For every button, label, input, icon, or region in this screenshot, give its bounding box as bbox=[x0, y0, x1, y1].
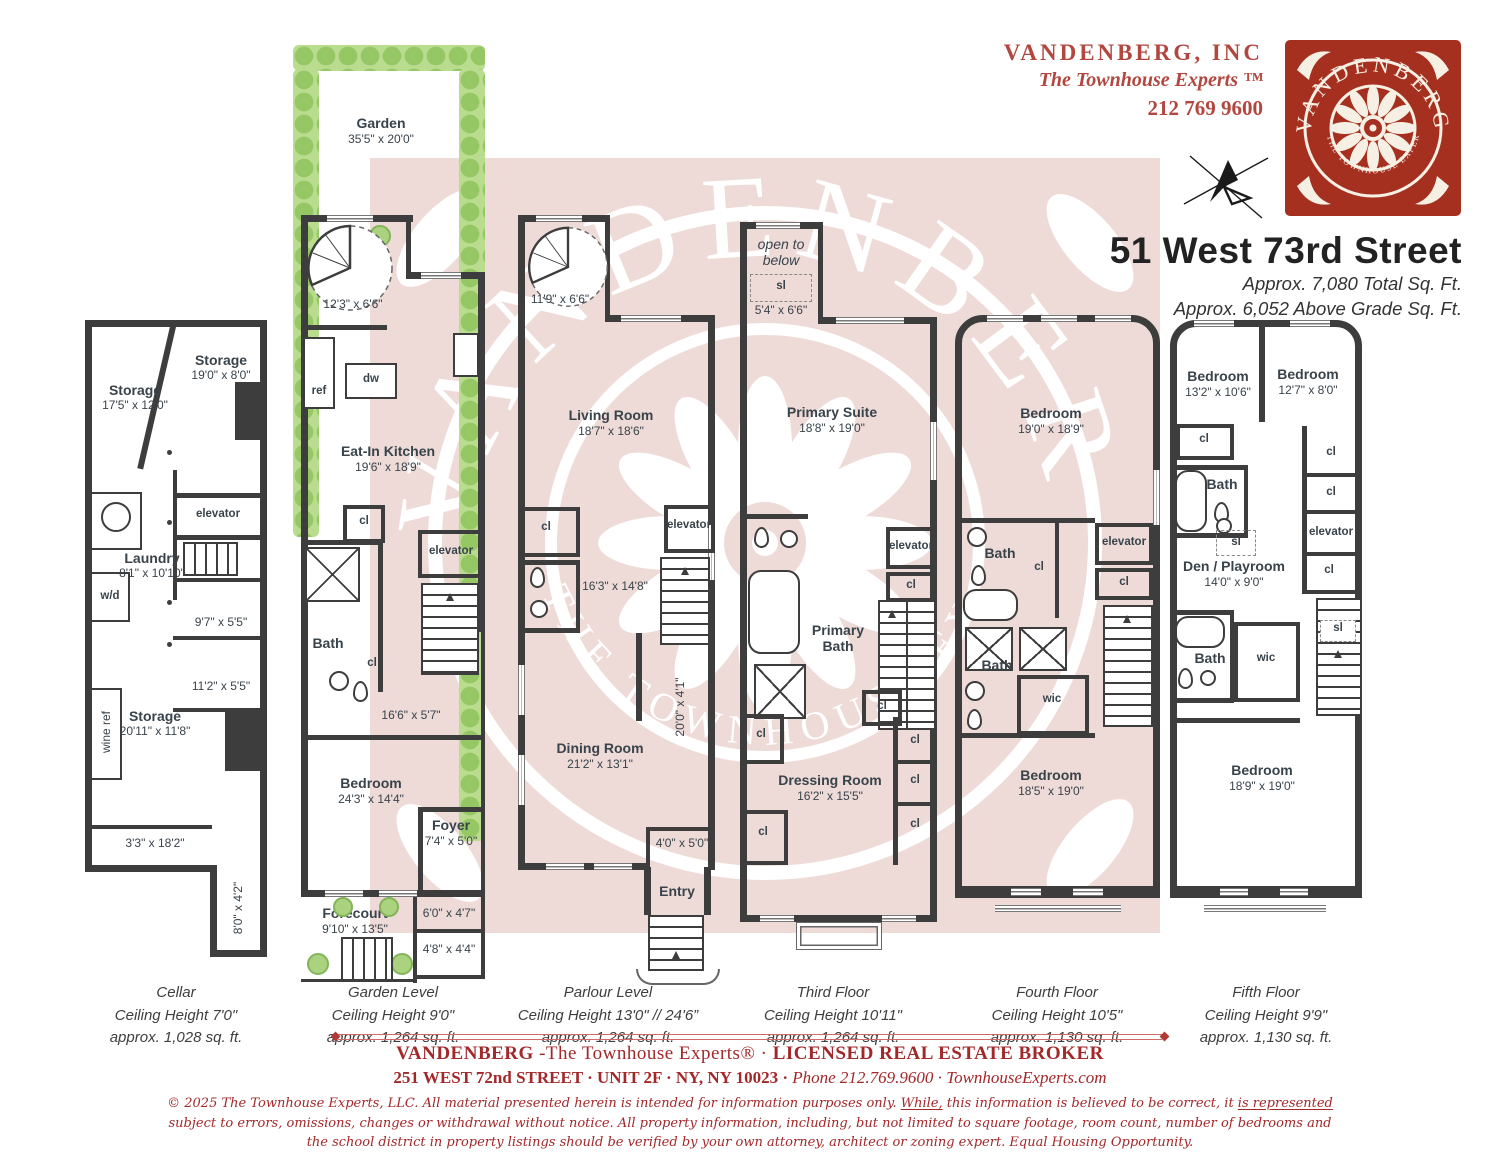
footer-brand: VANDENBERG bbox=[396, 1043, 534, 1064]
window bbox=[1011, 888, 1041, 896]
level-name: Garden Level bbox=[273, 982, 513, 1005]
sink bbox=[965, 681, 985, 701]
room-label: Bath bbox=[984, 545, 1015, 561]
room-label: Eat-In Kitchen bbox=[341, 443, 435, 459]
room-dims: 9'7" x 5'5" bbox=[195, 616, 247, 629]
bathtub bbox=[748, 570, 800, 654]
room-dims: 35'5" x 20'0" bbox=[348, 133, 414, 146]
total-sqft: Approx. 7,080 Total Sq. Ft. bbox=[1110, 272, 1462, 297]
entry-steps bbox=[341, 937, 393, 981]
room-label: wine ref bbox=[99, 711, 113, 753]
room-dims: 18'7" x 18'6" bbox=[578, 425, 644, 438]
room-label: ref bbox=[312, 385, 327, 397]
room-dims: 19'0" x 8'0" bbox=[191, 369, 250, 382]
window bbox=[325, 890, 363, 897]
column-dot bbox=[167, 520, 172, 525]
room-dims: 18'9" x 19'0" bbox=[1229, 780, 1295, 793]
room-dims: 17'5" x 12'0" bbox=[102, 399, 168, 412]
wall bbox=[1170, 465, 1248, 470]
room-dims: 20'0" x 4'1" bbox=[673, 677, 687, 736]
stairs bbox=[183, 542, 238, 576]
room-dims: 3'3" x 18'2" bbox=[125, 837, 184, 850]
bay-window bbox=[796, 922, 882, 950]
room-label: cl bbox=[910, 818, 920, 830]
bathtub bbox=[963, 589, 1018, 621]
wall bbox=[301, 325, 387, 330]
level-name: Parlour Level bbox=[488, 982, 728, 1005]
wall bbox=[1170, 718, 1300, 723]
room-label: Living Room bbox=[569, 407, 654, 423]
sink bbox=[530, 600, 548, 618]
stairs bbox=[1103, 605, 1153, 727]
footer-broker-line: VANDENBERG -The Townhouse Experts® · LIC… bbox=[0, 1043, 1500, 1065]
caption-fifth-floor: Fifth Floor Ceiling Height 9'9" approx. … bbox=[1146, 982, 1386, 1050]
column-dot bbox=[167, 600, 172, 605]
toilet bbox=[967, 709, 982, 730]
wall bbox=[478, 272, 485, 632]
room-label: Den / Playroom bbox=[1183, 558, 1285, 574]
room-label: cl bbox=[541, 521, 551, 533]
room-label: cl bbox=[1326, 486, 1336, 498]
window bbox=[546, 863, 584, 870]
room-label: sl bbox=[776, 280, 786, 292]
bay-window bbox=[1204, 905, 1326, 912]
footer-broker: LICENSED REAL ESTATE BROKER bbox=[773, 1043, 1104, 1064]
window bbox=[1280, 888, 1308, 896]
room-label: w/d bbox=[100, 590, 119, 602]
window bbox=[836, 317, 904, 324]
level-name: Cellar bbox=[56, 982, 296, 1005]
wall bbox=[413, 897, 417, 983]
ceiling-height: Ceiling Height 13'0" // 24'6” bbox=[488, 1005, 728, 1028]
disclaimer-text: this information is believed to be corre… bbox=[943, 1096, 1238, 1111]
disclaimer-underline: is represented bbox=[1238, 1096, 1333, 1111]
brand-block: VANDENBERG, INC The Townhouse Experts ™ … bbox=[1004, 40, 1263, 121]
property-header: 51 West 73rd Street Approx. 7,080 Total … bbox=[1110, 230, 1462, 322]
room-dims: 16'3" x 14'8" bbox=[582, 580, 648, 593]
floor-plan-fourth-floor: Bedroom 19'0" x 18'9" Bath cl elevator c… bbox=[955, 315, 1160, 957]
room-dims: 21'2" x 13'1" bbox=[567, 758, 633, 771]
room-dims: 11'9" x 6'6" bbox=[531, 293, 589, 306]
shower bbox=[1019, 627, 1067, 671]
entry-stoop bbox=[648, 915, 704, 971]
stair-arrow-icon bbox=[446, 593, 454, 601]
shower bbox=[305, 547, 360, 602]
room-label: cl bbox=[1119, 576, 1129, 588]
room-dims: 8'1" x 10'10" bbox=[119, 567, 185, 580]
room-label: Bath bbox=[312, 635, 343, 651]
window bbox=[1041, 315, 1077, 322]
room-dims: 14'0" x 9'0" bbox=[1204, 576, 1263, 589]
wall bbox=[1244, 465, 1248, 537]
ceiling-height: Ceiling Height 10'11" bbox=[713, 1005, 953, 1028]
toilet bbox=[530, 567, 545, 588]
disclaimer-underline: While, bbox=[901, 1096, 943, 1111]
stair-arrow-icon bbox=[888, 610, 896, 618]
wall bbox=[260, 320, 267, 957]
room-label: Storage bbox=[109, 382, 161, 398]
room-dims: 12'7" x 8'0" bbox=[1278, 384, 1337, 397]
wall bbox=[173, 493, 261, 498]
wall bbox=[1170, 610, 1234, 615]
room-label: Bath bbox=[1206, 476, 1237, 492]
room-label: Primary Bath bbox=[799, 622, 877, 654]
room-label: dw bbox=[363, 373, 379, 385]
wall bbox=[92, 825, 212, 829]
window bbox=[1194, 320, 1234, 327]
room-label: elevator bbox=[1309, 526, 1353, 538]
footer-website[interactable]: TownhouseExperts.com bbox=[946, 1068, 1106, 1087]
room-dims: 19'6" x 18'9" bbox=[355, 461, 421, 474]
room-dims: 19'0" x 18'9" bbox=[1018, 423, 1084, 436]
sink bbox=[329, 671, 349, 691]
wall bbox=[1259, 320, 1265, 422]
window bbox=[1095, 315, 1131, 322]
wall bbox=[413, 975, 485, 979]
wall bbox=[704, 867, 711, 915]
wall bbox=[1170, 886, 1362, 898]
room-dims: 18'5" x 19'0" bbox=[1018, 785, 1084, 798]
wall bbox=[1302, 473, 1362, 477]
room-label: open to below bbox=[745, 236, 817, 268]
room-dims: 4'0" x 5'0" bbox=[656, 837, 708, 850]
room-label: Dining Room bbox=[556, 740, 643, 756]
room-dims: 12'3" x 6'6" bbox=[323, 298, 382, 311]
bathtub bbox=[1175, 616, 1225, 648]
room-label: Storage bbox=[195, 352, 247, 368]
room-label: cl bbox=[758, 826, 768, 838]
property-address: 51 West 73rd Street bbox=[1110, 230, 1462, 272]
window bbox=[379, 890, 417, 897]
sink bbox=[101, 502, 131, 532]
floor-plan-third-floor: open to below sl 5'4" x 6'6" Primary Sui… bbox=[740, 222, 937, 958]
wall bbox=[85, 865, 217, 872]
wall bbox=[173, 535, 261, 540]
room-label: Primary Suite bbox=[787, 404, 877, 420]
room-dims: 16'6" x 5'7" bbox=[381, 709, 440, 722]
company-phone: 212 769 9600 bbox=[1004, 96, 1263, 121]
room-label: Bath bbox=[981, 657, 1012, 673]
room-label: elevator bbox=[196, 508, 240, 520]
wall bbox=[818, 222, 823, 322]
wall bbox=[955, 518, 1095, 523]
bay-window bbox=[995, 905, 1121, 912]
wall bbox=[893, 717, 898, 865]
room-label: sl bbox=[1231, 536, 1241, 548]
room-dims: 24'3" x 14'4" bbox=[338, 793, 404, 806]
room-label: cl bbox=[359, 515, 369, 527]
refrigerator bbox=[303, 337, 335, 409]
wall bbox=[893, 760, 937, 764]
hedge bbox=[293, 45, 485, 71]
wall bbox=[646, 827, 650, 867]
sink bbox=[780, 530, 798, 548]
level-name: Fourth Floor bbox=[937, 982, 1177, 1005]
room-label: cl bbox=[877, 700, 887, 712]
wall bbox=[518, 560, 580, 565]
ceiling-height: Ceiling Height 10'5" bbox=[937, 1005, 1177, 1028]
bush bbox=[391, 953, 413, 975]
room-label: Laundry bbox=[124, 550, 179, 566]
caption-cellar: Cellar Ceiling Height 7'0" approx. 1,028… bbox=[56, 982, 296, 1050]
stove bbox=[453, 333, 479, 377]
room-label: Bedroom bbox=[1020, 405, 1081, 421]
room-label: cl bbox=[367, 657, 377, 669]
room-label: elevator bbox=[429, 545, 473, 557]
footer-disclaimer: © 2025 The Townhouse Experts, LLC. All m… bbox=[165, 1094, 1335, 1153]
room-label: sl bbox=[1333, 622, 1343, 634]
wall bbox=[955, 886, 1160, 898]
wall bbox=[418, 807, 423, 895]
stair-arrow-icon bbox=[1334, 650, 1342, 658]
room-label: cl bbox=[1034, 561, 1044, 573]
wall bbox=[576, 560, 580, 632]
room-dims: 6'0" x 4'7" bbox=[423, 907, 475, 920]
room-label: Bath bbox=[1194, 650, 1225, 666]
wall bbox=[1302, 590, 1362, 594]
footer-brand-tagline: -The Townhouse Experts® · bbox=[534, 1043, 773, 1064]
room-dims: 18'8" x 19'0" bbox=[799, 422, 865, 435]
room-dims: 9'10" x 13'5" bbox=[322, 923, 388, 936]
room-label: cl bbox=[906, 579, 916, 591]
stair-arrow-icon bbox=[672, 951, 680, 959]
level-name: Third Floor bbox=[713, 982, 953, 1005]
room-dims: 20'11" x 11'8" bbox=[120, 725, 191, 738]
wall bbox=[893, 802, 937, 806]
room-label: Bedroom bbox=[340, 775, 401, 791]
room-dims: 16'2" x 15'5" bbox=[797, 790, 863, 803]
wall bbox=[173, 636, 261, 640]
footer: VANDENBERG -The Townhouse Experts® · LIC… bbox=[0, 1043, 1500, 1153]
wall bbox=[1055, 520, 1059, 618]
bathtub bbox=[1175, 470, 1207, 532]
window bbox=[930, 422, 937, 480]
wall bbox=[646, 827, 715, 831]
wall bbox=[636, 633, 642, 721]
footer-phone: Phone 212.769.9600 · bbox=[792, 1068, 946, 1087]
ceiling-height: Ceiling Height 9'0" bbox=[273, 1005, 513, 1028]
window bbox=[421, 272, 461, 279]
bush bbox=[333, 897, 353, 917]
room-label: Bedroom bbox=[1231, 762, 1292, 778]
room-label: Bedroom bbox=[1020, 767, 1081, 783]
floor-plan-cellar: Storage 17'5" x 12'0" Storage 19'0" x 8'… bbox=[85, 320, 267, 962]
wall bbox=[740, 514, 808, 519]
sink bbox=[1200, 670, 1216, 686]
wall bbox=[406, 215, 411, 277]
toilet bbox=[971, 565, 986, 586]
room-dims: 5'4" x 6'6" bbox=[755, 304, 807, 317]
wall bbox=[644, 867, 651, 915]
wall bbox=[1302, 552, 1362, 556]
room-label: elevator bbox=[667, 519, 711, 531]
room-label: Dressing Room bbox=[778, 772, 881, 788]
ceiling-height: Ceiling Height 7'0" bbox=[56, 1005, 296, 1028]
wall bbox=[1170, 698, 1234, 703]
room-label: elevator bbox=[1102, 536, 1146, 548]
room-label: cl bbox=[1326, 446, 1336, 458]
room-label: cl bbox=[1199, 433, 1209, 445]
room-dims: 8'0" x 4'2" bbox=[231, 882, 245, 934]
toilet bbox=[754, 527, 769, 548]
level-name: Fifth Floor bbox=[1146, 982, 1386, 1005]
above-grade-sqft: Approx. 6,052 Above Grade Sq. Ft. bbox=[1110, 297, 1462, 322]
window bbox=[1073, 888, 1103, 896]
wall bbox=[418, 807, 485, 812]
room-label: cl bbox=[910, 774, 920, 786]
room-label: wic bbox=[1043, 693, 1062, 705]
company-tagline: The Townhouse Experts ™ bbox=[1004, 69, 1263, 92]
window bbox=[1153, 470, 1160, 525]
window bbox=[1290, 320, 1330, 327]
window bbox=[327, 215, 373, 222]
wall bbox=[210, 950, 267, 957]
room-label: Bedroom bbox=[1187, 368, 1248, 384]
bush bbox=[307, 953, 329, 975]
column-dot bbox=[167, 642, 172, 647]
wall bbox=[301, 735, 481, 740]
ceiling-height: Ceiling Height 9'9" bbox=[1146, 1005, 1386, 1028]
column-dot bbox=[167, 450, 172, 455]
wall bbox=[518, 628, 580, 633]
window bbox=[621, 315, 681, 322]
bush bbox=[379, 897, 399, 917]
wall bbox=[413, 929, 485, 933]
sink bbox=[967, 527, 987, 547]
room-label: Bedroom bbox=[1277, 366, 1338, 382]
wall bbox=[481, 632, 485, 979]
room-dims: 13'2" x 10'6" bbox=[1185, 386, 1251, 399]
window bbox=[518, 755, 525, 805]
footer-address-line: 251 WEST 72nd STREET · UNIT 2F · NY, NY … bbox=[0, 1068, 1500, 1088]
disclaimer-text: subject to errors, omissions, changes or… bbox=[168, 1116, 1331, 1151]
company-name: VANDENBERG, INC bbox=[1004, 40, 1263, 66]
wall bbox=[210, 865, 217, 957]
toilet bbox=[353, 681, 368, 702]
wall bbox=[1302, 510, 1362, 514]
north-arrow-icon bbox=[1182, 142, 1270, 230]
wall bbox=[235, 382, 261, 440]
room-dims: 4'8" x 4'4" bbox=[423, 943, 475, 956]
room-label: Entry bbox=[659, 883, 695, 899]
floor-plan-fifth-floor: Bedroom 13'2" x 10'6" Bedroom 12'7" x 8'… bbox=[1170, 320, 1362, 958]
window bbox=[987, 315, 1023, 322]
shower bbox=[754, 664, 806, 719]
stair-arrow-icon bbox=[1123, 615, 1131, 623]
disclaimer-text: © 2025 The Townhouse Experts, LLC. All m… bbox=[167, 1096, 901, 1111]
vandenberg-logo: VANDENBERG THE TOWNHOUSE EXPERTS bbox=[1285, 40, 1461, 216]
window bbox=[882, 915, 916, 922]
footer-address: 251 WEST 72nd STREET · UNIT 2F · NY, NY … bbox=[393, 1068, 792, 1087]
wall bbox=[225, 711, 261, 771]
room-label: Storage bbox=[129, 708, 181, 724]
room-label: cl bbox=[910, 734, 920, 746]
floor-plan-garden-level: Garden 35'5" x 20'0" 12'3" x 6'6" ref dw… bbox=[293, 45, 493, 987]
stair-arrow-icon bbox=[681, 567, 689, 575]
window bbox=[518, 665, 525, 715]
wall bbox=[955, 733, 1095, 738]
window bbox=[536, 215, 582, 222]
wall bbox=[173, 578, 261, 582]
window bbox=[760, 915, 794, 922]
floor-plan-parlour-level: 11'9" x 6'6" Living Room 18'7" x 18'6" c… bbox=[518, 215, 718, 987]
room-label: Garden bbox=[356, 115, 405, 131]
room-dims: 7'4" x 5'0" bbox=[425, 835, 477, 848]
window bbox=[1220, 888, 1248, 896]
room-label: wic bbox=[1257, 652, 1276, 664]
window bbox=[756, 222, 800, 229]
wall bbox=[906, 600, 908, 730]
room-label: elevator bbox=[889, 540, 933, 552]
wall bbox=[301, 540, 383, 545]
room-label: Foyer bbox=[432, 817, 470, 833]
divider-rule bbox=[338, 1034, 1162, 1040]
room-label: cl bbox=[1324, 564, 1334, 576]
floorplan-sheet: VANDENBERG THE TOWNHOUSE EXPERTS VANDENB… bbox=[0, 0, 1500, 1159]
room-label: cl bbox=[756, 728, 766, 740]
wall bbox=[378, 540, 383, 692]
toilet bbox=[1178, 668, 1193, 689]
room-dims: 11'2" x 5'5" bbox=[192, 680, 250, 693]
walk-in-closet bbox=[1017, 675, 1089, 735]
window bbox=[594, 863, 632, 870]
